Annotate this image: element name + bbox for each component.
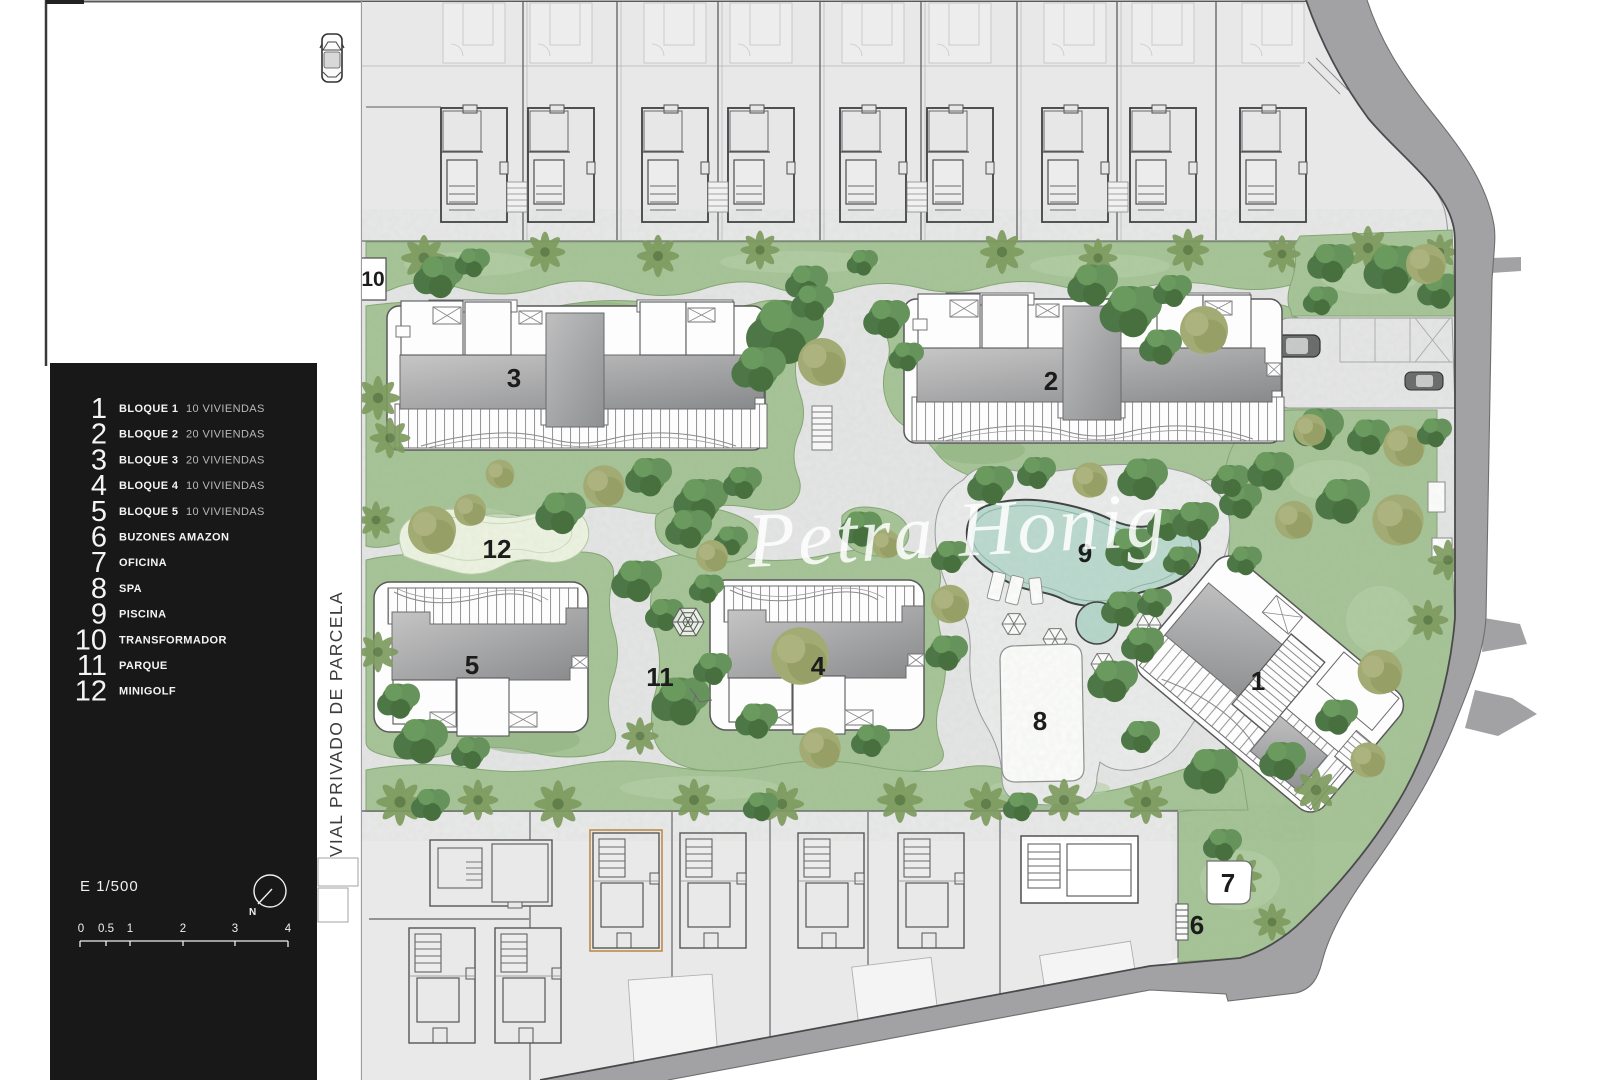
svg-text:BLOQUE 2: BLOQUE 2 (119, 429, 178, 441)
svg-text:3: 3 (507, 363, 521, 393)
svg-text:VIAL PRIVADO DE PARCELA: VIAL PRIVADO DE PARCELA (326, 591, 346, 857)
svg-text:10 VIVIENDAS: 10 VIVIENDAS (186, 506, 265, 518)
svg-text:BLOQUE 1: BLOQUE 1 (119, 403, 178, 415)
svg-text:2: 2 (180, 923, 186, 935)
svg-text:8: 8 (1033, 706, 1047, 736)
svg-text:0.5: 0.5 (98, 923, 114, 935)
svg-text:10: 10 (361, 268, 384, 291)
svg-text:0: 0 (78, 923, 84, 935)
svg-text:E 1/500: E 1/500 (80, 878, 139, 895)
svg-text:SPA: SPA (119, 583, 142, 595)
svg-text:12: 12 (75, 676, 107, 708)
svg-text:7: 7 (1221, 868, 1235, 898)
svg-text:2: 2 (1044, 366, 1058, 396)
svg-text:TRANSFORMADOR: TRANSFORMADOR (119, 634, 227, 646)
svg-text:BLOQUE 4: BLOQUE 4 (119, 480, 179, 492)
svg-text:11: 11 (646, 662, 674, 692)
svg-text:BLOQUE 3: BLOQUE 3 (119, 454, 178, 466)
svg-text:3: 3 (232, 923, 238, 935)
svg-text:N: N (249, 907, 256, 918)
svg-text:20 VIVIENDAS: 20 VIVIENDAS (186, 429, 265, 441)
svg-text:4: 4 (811, 651, 826, 681)
svg-text:BLOQUE 5: BLOQUE 5 (119, 506, 178, 518)
svg-text:PISCINA: PISCINA (119, 609, 166, 621)
svg-text:6: 6 (1190, 910, 1204, 940)
svg-text:PARQUE: PARQUE (119, 660, 168, 672)
svg-text:4: 4 (285, 923, 292, 935)
svg-text:OFICINA: OFICINA (119, 557, 167, 569)
svg-text:BUZONES AMAZON: BUZONES AMAZON (119, 532, 229, 544)
svg-text:10 VIVIENDAS: 10 VIVIENDAS (186, 403, 265, 415)
svg-text:MINIGOLF: MINIGOLF (119, 686, 176, 698)
svg-text:10 VIVIENDAS: 10 VIVIENDAS (186, 480, 265, 492)
svg-text:5: 5 (465, 650, 479, 680)
svg-text:1: 1 (127, 923, 133, 935)
svg-text:1: 1 (1251, 666, 1265, 696)
svg-text:20 VIVIENDAS: 20 VIVIENDAS (186, 454, 265, 466)
svg-text:12: 12 (483, 534, 512, 564)
